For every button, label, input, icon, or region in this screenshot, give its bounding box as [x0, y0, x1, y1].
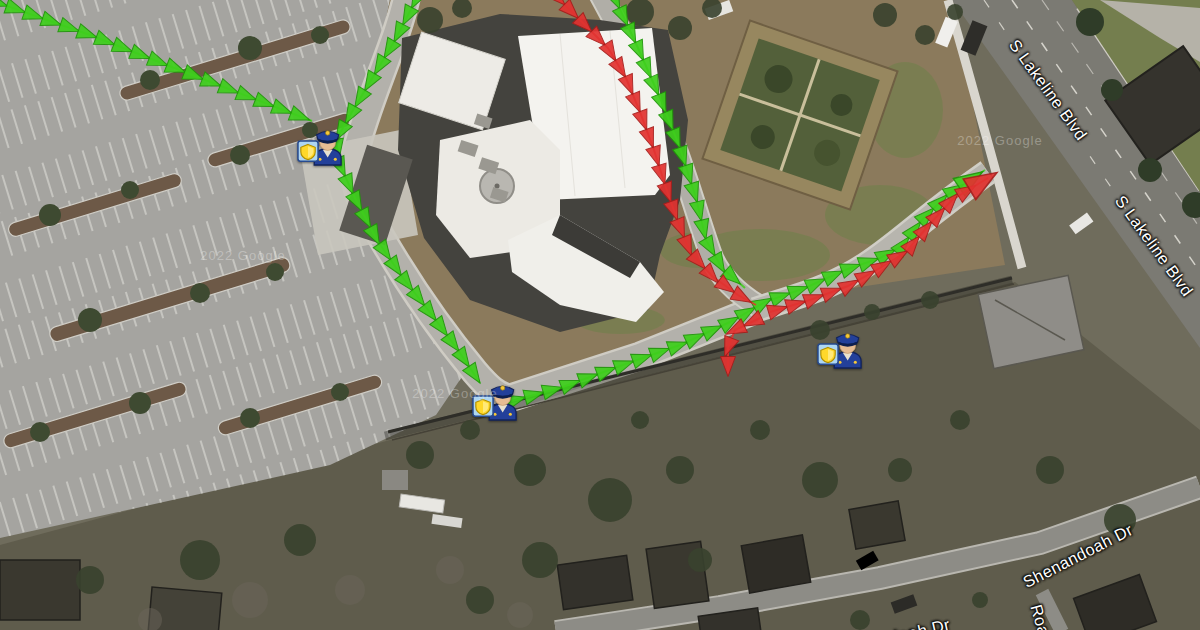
- shield-badge: [818, 344, 838, 364]
- police-officer-marker-officer-northwest[interactable]: [297, 120, 343, 166]
- shield-badge: [473, 396, 493, 416]
- map-canvas[interactable]: S Lakeline BlvdS Lakeline BlvdShenandoah…: [0, 0, 1200, 630]
- satellite-imagery: [0, 0, 1200, 630]
- shield-badge: [298, 141, 318, 161]
- police-officer-marker-officer-south[interactable]: [472, 375, 518, 421]
- police-officer-marker-officer-east[interactable]: [817, 323, 863, 369]
